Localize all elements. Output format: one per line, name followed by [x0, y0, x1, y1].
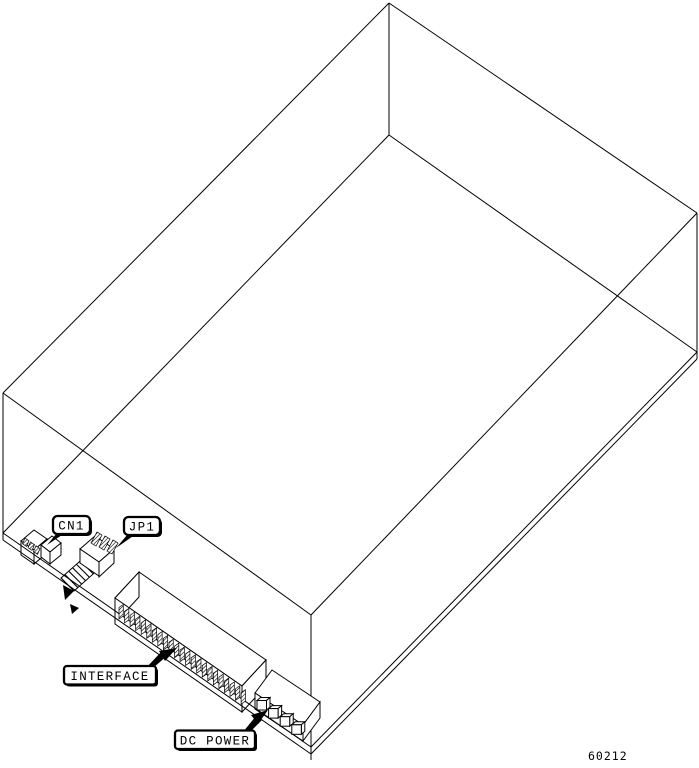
interface-pin: [163, 635, 167, 650]
figure-number: 60212: [588, 749, 628, 763]
interface-pin: [224, 678, 228, 693]
callout-cn1-label: CN1: [58, 520, 84, 534]
isometric-drive-diagram: CN1 JP1 INTERFACE DC POWER 60212: [0, 0, 699, 768]
interface-pin: [191, 655, 195, 670]
interface-pin: [152, 628, 156, 643]
callout-interface-label: INTERFACE: [70, 670, 149, 684]
interface-pin: [236, 686, 240, 701]
interface-pin: [147, 624, 151, 639]
dc-pin-front: [292, 725, 302, 735]
interface-pin: [180, 647, 184, 662]
interface-pin: [230, 682, 234, 697]
interface-pin: [241, 690, 245, 705]
dc-pin-front: [280, 717, 290, 727]
dc-pin-front: [257, 701, 267, 711]
jp1-jumper: [61, 532, 118, 614]
pin1-arrow-tick: [70, 604, 79, 614]
interface-pin: [136, 616, 140, 631]
interface-pin: [175, 643, 179, 658]
chassis-wireframe: [3, 3, 697, 760]
callout-dc-power-label: DC POWER: [180, 735, 250, 749]
interface-pin: [158, 632, 162, 647]
interface-pin: [219, 674, 223, 689]
interface-pin: [202, 663, 206, 678]
interface-pin: [130, 612, 134, 627]
callout-jp1-label: JP1: [129, 521, 155, 535]
interface-pin: [125, 608, 129, 623]
callout-dc-power: DC POWER: [175, 710, 268, 751]
callout-interface: INTERFACE: [64, 648, 177, 687]
interface-pin: [186, 651, 190, 666]
interface-pin: [119, 605, 123, 620]
technical-drawing-page: CN1 JP1 INTERFACE DC POWER 60212: [0, 0, 699, 768]
interface-pin: [208, 666, 212, 681]
interface-pin: [197, 659, 201, 674]
interface-pin: [141, 620, 145, 635]
interface-pin: [213, 670, 217, 685]
callout-jp1: JP1: [116, 517, 162, 548]
dc-pin-front: [269, 709, 279, 719]
